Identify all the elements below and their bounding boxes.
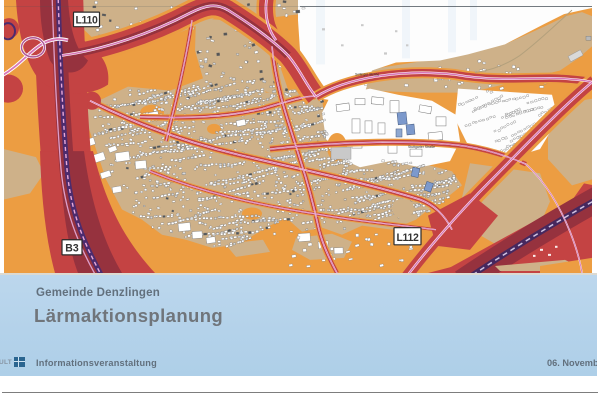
svg-text:L112: L112 <box>396 232 419 244</box>
svg-text:L110: L110 <box>75 14 98 26</box>
svg-text:Sellinger Straße: Sellinger Straße <box>355 73 379 77</box>
svg-text:Stuttgarter Straße: Stuttgarter Straße <box>408 145 435 149</box>
svg-text:B3: B3 <box>65 243 79 255</box>
